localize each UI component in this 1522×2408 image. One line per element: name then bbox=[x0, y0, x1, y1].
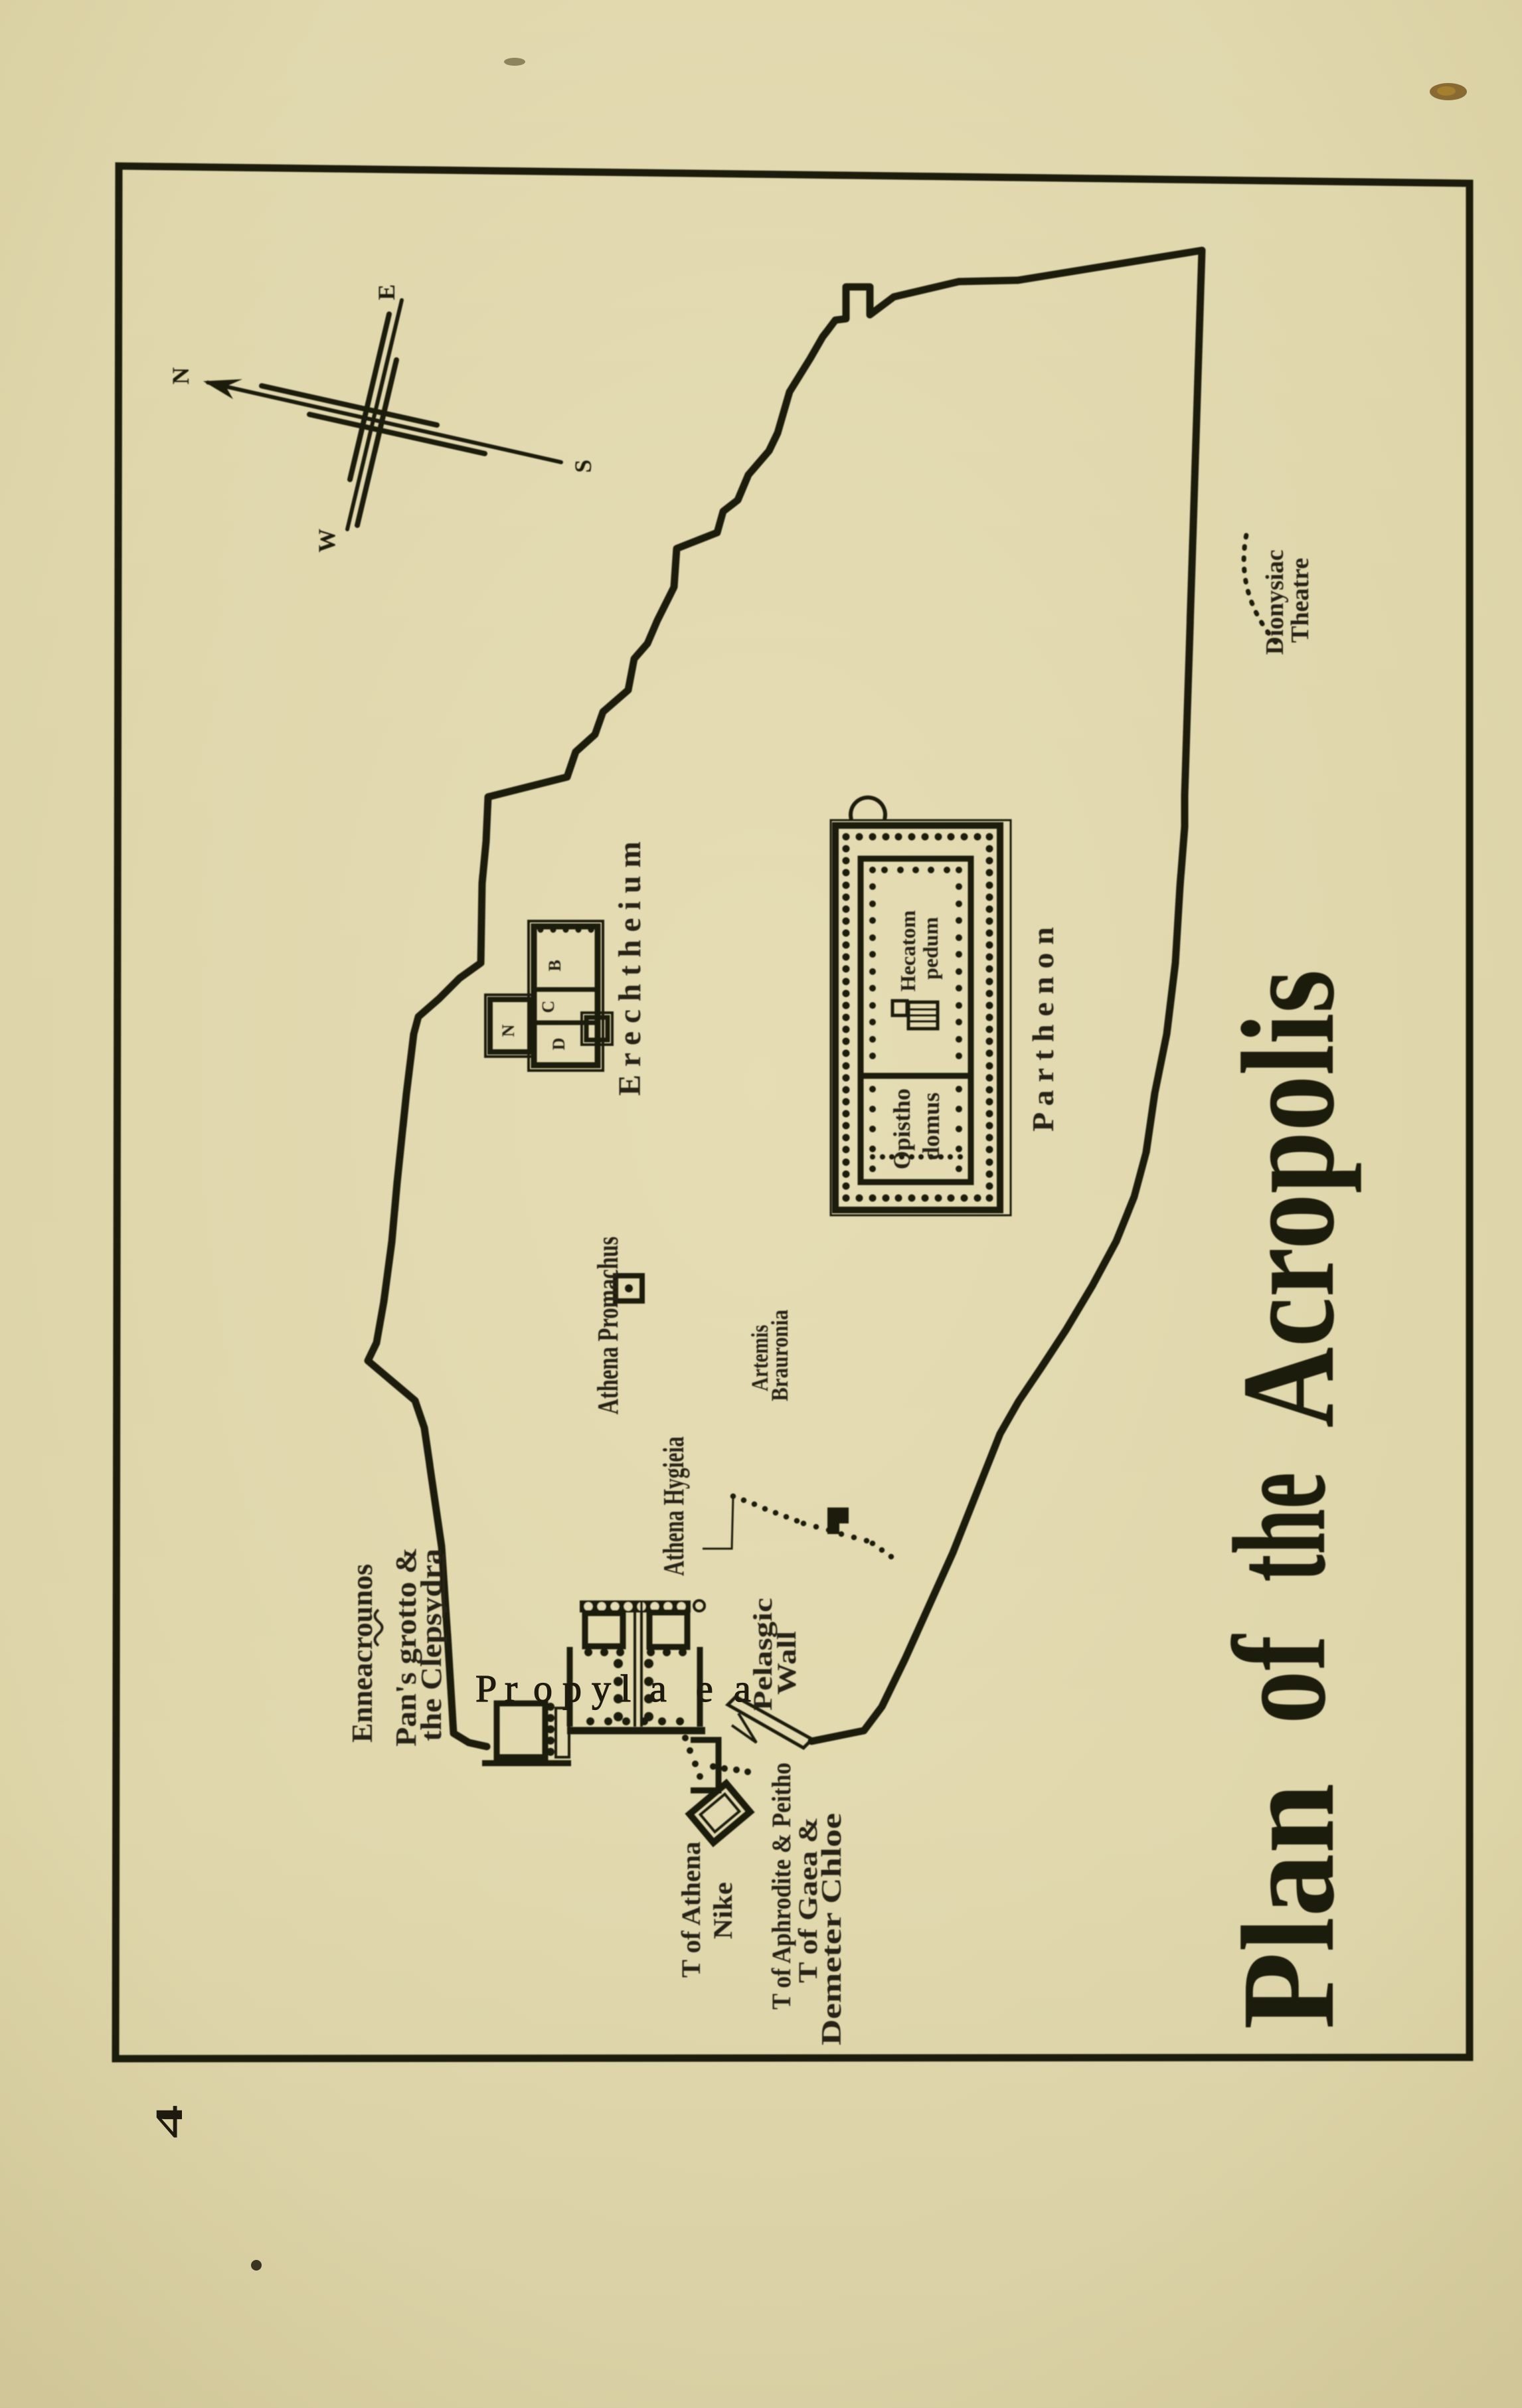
svg-text:Opistho: Opistho bbox=[888, 1088, 915, 1169]
svg-text:Enneacrounos: Enneacrounos bbox=[346, 1564, 379, 1743]
svg-text:the: the bbox=[1207, 1472, 1353, 1582]
svg-text:N: N bbox=[499, 1024, 518, 1037]
svg-text:Brauronia: Brauronia bbox=[766, 1310, 793, 1401]
svg-text:B: B bbox=[545, 960, 564, 971]
svg-text:domus: domus bbox=[918, 1092, 944, 1160]
svg-text:Demeter Chloe: Demeter Chloe bbox=[817, 1813, 847, 2045]
svg-text:T of Aphrodite & Peitho: T of Aphrodite & Peitho bbox=[766, 1763, 796, 2010]
svg-text:E: E bbox=[373, 284, 400, 300]
svg-text:N: N bbox=[167, 367, 194, 385]
svg-text:C: C bbox=[539, 1001, 558, 1013]
svg-text:a: a bbox=[734, 1667, 751, 1710]
svg-text:Plan: Plan bbox=[1215, 1783, 1362, 2029]
svg-text:S: S bbox=[570, 460, 596, 473]
svg-text:Wall: Wall bbox=[772, 1631, 802, 1695]
svg-text:Dionysiac: Dionysiac bbox=[1261, 550, 1289, 655]
svg-text:Acropolis: Acropolis bbox=[1215, 970, 1362, 1428]
svg-text:Theatre: Theatre bbox=[1286, 558, 1314, 643]
svg-text:a: a bbox=[649, 1667, 667, 1710]
svg-text:e: e bbox=[696, 1667, 713, 1710]
svg-text:W: W bbox=[313, 529, 340, 553]
svg-text:p: p bbox=[562, 1667, 582, 1710]
svg-text:D: D bbox=[549, 1038, 568, 1051]
svg-text:4: 4 bbox=[147, 2105, 191, 2138]
svg-text:P: P bbox=[475, 1667, 497, 1710]
svg-text:of: of bbox=[1207, 1634, 1353, 1724]
svg-text:pedum: pedum bbox=[918, 917, 942, 980]
svg-text:Athena Hygieia: Athena Hygieia bbox=[657, 1436, 690, 1576]
svg-text:r: r bbox=[505, 1667, 517, 1710]
svg-text:l: l bbox=[620, 1667, 631, 1710]
svg-text:y: y bbox=[592, 1667, 611, 1710]
svg-text:Athena Promachus: Athena Promachus bbox=[592, 1237, 624, 1415]
svg-text:E r e c h t h e i u m: E r e c h t h e i u m bbox=[612, 841, 647, 1096]
svg-text:o: o bbox=[533, 1667, 552, 1710]
svg-text:Hecatom: Hecatom bbox=[896, 910, 920, 991]
svg-text:Nike: Nike bbox=[708, 1882, 738, 1939]
svg-text:P a r t h e n o n: P a r t h e n o n bbox=[1026, 927, 1060, 1132]
svg-text:T of Athena: T of Athena bbox=[676, 1842, 706, 1978]
